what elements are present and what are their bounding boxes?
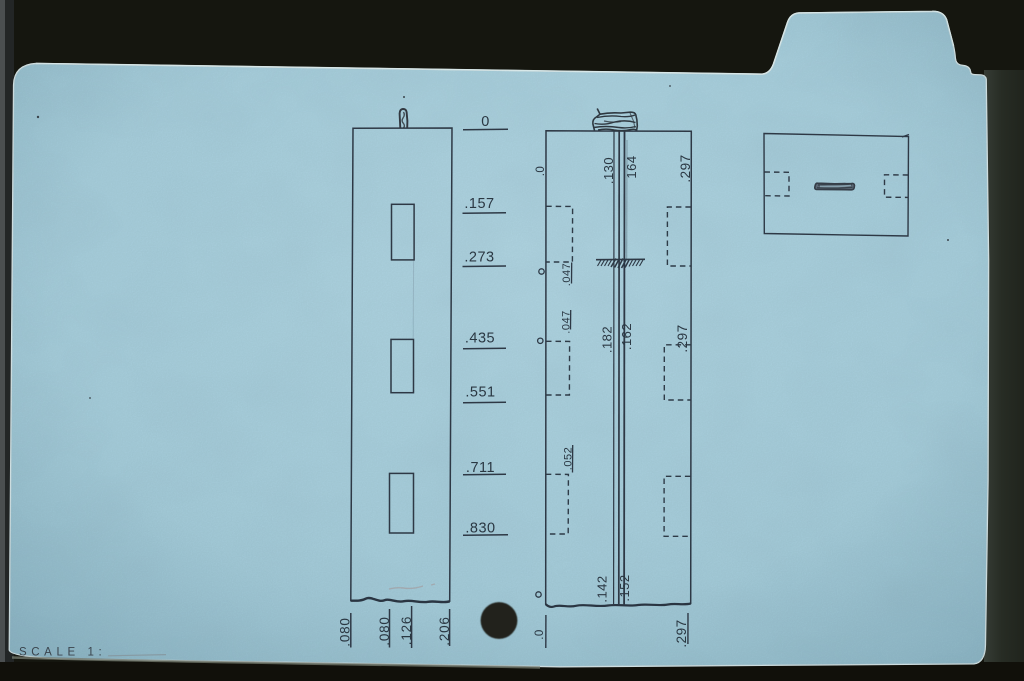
svg-text:.273: .273: [464, 250, 494, 266]
svg-text:164: 164: [624, 155, 639, 178]
svg-text:.130: .130: [601, 157, 616, 184]
svg-text:.162: .162: [619, 323, 634, 350]
svg-text:.551: .551: [465, 385, 495, 401]
svg-text:.0: .0: [535, 166, 547, 177]
svg-text:.435: .435: [465, 331, 495, 347]
svg-text:.152: .152: [617, 574, 632, 601]
svg-text:.126: .126: [399, 616, 414, 645]
svg-text:.297: .297: [674, 619, 689, 647]
svg-text:.142: .142: [595, 575, 610, 602]
svg-text:.206: .206: [437, 616, 452, 645]
svg-text:.0: .0: [534, 629, 546, 640]
svg-text:.297: .297: [675, 324, 690, 352]
svg-text:0: 0: [481, 114, 490, 130]
svg-text:.182: .182: [600, 326, 615, 353]
svg-text:.711: .711: [466, 460, 495, 476]
svg-text:.157: .157: [464, 196, 494, 212]
svg-text:.297: .297: [678, 154, 693, 182]
svg-text:.080: .080: [377, 616, 392, 645]
svg-text:.080: .080: [338, 617, 353, 646]
svg-text:.830: .830: [465, 521, 495, 537]
